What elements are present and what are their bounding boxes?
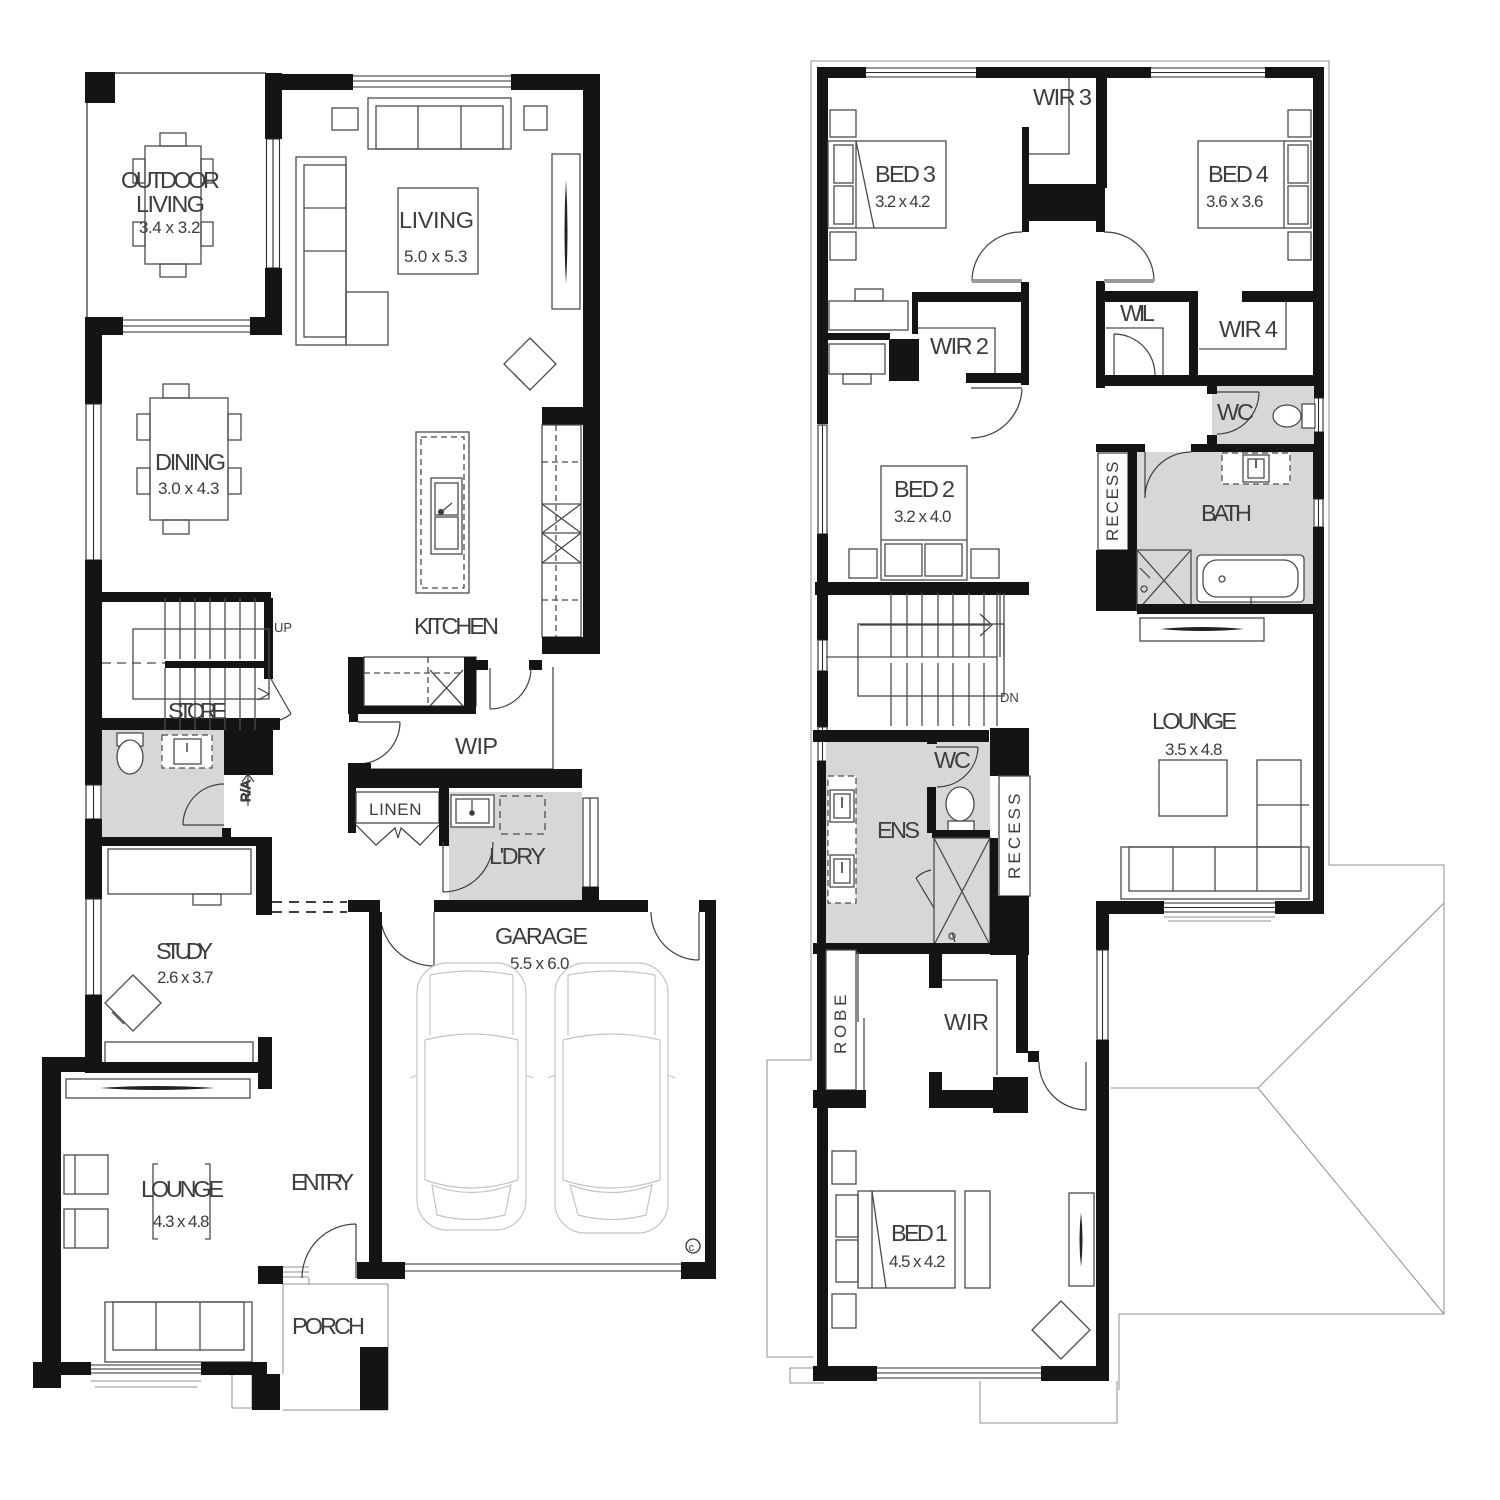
svg-text:DN: DN <box>1000 690 1019 705</box>
svg-text:WIP: WIP <box>455 733 499 759</box>
svg-text:WIR: WIR <box>944 1009 990 1035</box>
svg-text:RECESS: RECESS <box>1103 461 1122 541</box>
svg-text:R/A: R/A <box>238 780 253 802</box>
svg-text:3.0 x 4.3: 3.0 x 4.3 <box>158 479 220 498</box>
svg-text:WIL: WIL <box>1120 300 1156 326</box>
svg-text:UP: UP <box>274 620 292 635</box>
svg-text:DINING: DINING <box>155 449 227 475</box>
svg-text:4.5 x 4.2: 4.5 x 4.2 <box>889 1252 946 1271</box>
svg-text:STUDY: STUDY <box>156 938 214 964</box>
svg-text:3.2 x 4.0: 3.2 x 4.0 <box>894 507 952 526</box>
svg-text:BED 3: BED 3 <box>875 161 937 187</box>
svg-text:ENS: ENS <box>877 817 921 843</box>
svg-text:3.4 x 3.2: 3.4 x 3.2 <box>139 218 201 237</box>
svg-text:5.0 x 5.3: 5.0 x 5.3 <box>404 247 468 266</box>
svg-text:4.3 x 4.8: 4.3 x 4.8 <box>153 1212 210 1231</box>
svg-text:3.6 x 3.6: 3.6 x 3.6 <box>1206 192 1264 211</box>
svg-text:WC: WC <box>1217 399 1255 425</box>
svg-text:BATH: BATH <box>1201 500 1253 526</box>
svg-text:L'DRY: L'DRY <box>489 843 547 869</box>
svg-text:STORE: STORE <box>168 698 228 724</box>
svg-text:BED 1: BED 1 <box>891 1220 949 1246</box>
svg-text:3.5 x 4.8: 3.5 x 4.8 <box>1165 740 1223 759</box>
svg-text:LINEN: LINEN <box>369 800 422 819</box>
svg-text:WIR 2: WIR 2 <box>930 333 990 359</box>
svg-text:ENTRY: ENTRY <box>291 1169 355 1195</box>
svg-text:BED 4: BED 4 <box>1208 161 1270 187</box>
svg-text:PORCH: PORCH <box>292 1313 366 1339</box>
svg-text:GARAGE: GARAGE <box>495 923 589 949</box>
svg-text:WC: WC <box>934 747 972 773</box>
svg-text:WIR 4: WIR 4 <box>1219 316 1279 342</box>
svg-text:LIVING: LIVING <box>399 207 475 233</box>
svg-text:LIVING: LIVING <box>136 191 206 217</box>
svg-text:2.6 x 3.7: 2.6 x 3.7 <box>157 968 214 987</box>
svg-text:BED 2: BED 2 <box>894 476 956 502</box>
svg-text:KITCHEN: KITCHEN <box>414 613 500 639</box>
svg-text:LOUNGE: LOUNGE <box>1152 708 1238 734</box>
svg-text:LOUNGE: LOUNGE <box>141 1176 225 1202</box>
svg-text:3.2 x 4.2: 3.2 x 4.2 <box>875 192 931 211</box>
svg-text:OUTDOOR: OUTDOOR <box>121 167 221 193</box>
svg-text:5.5 x 6.0: 5.5 x 6.0 <box>510 954 570 973</box>
svg-text:c: c <box>689 1242 695 1254</box>
svg-text:WIR 3: WIR 3 <box>1033 84 1093 110</box>
